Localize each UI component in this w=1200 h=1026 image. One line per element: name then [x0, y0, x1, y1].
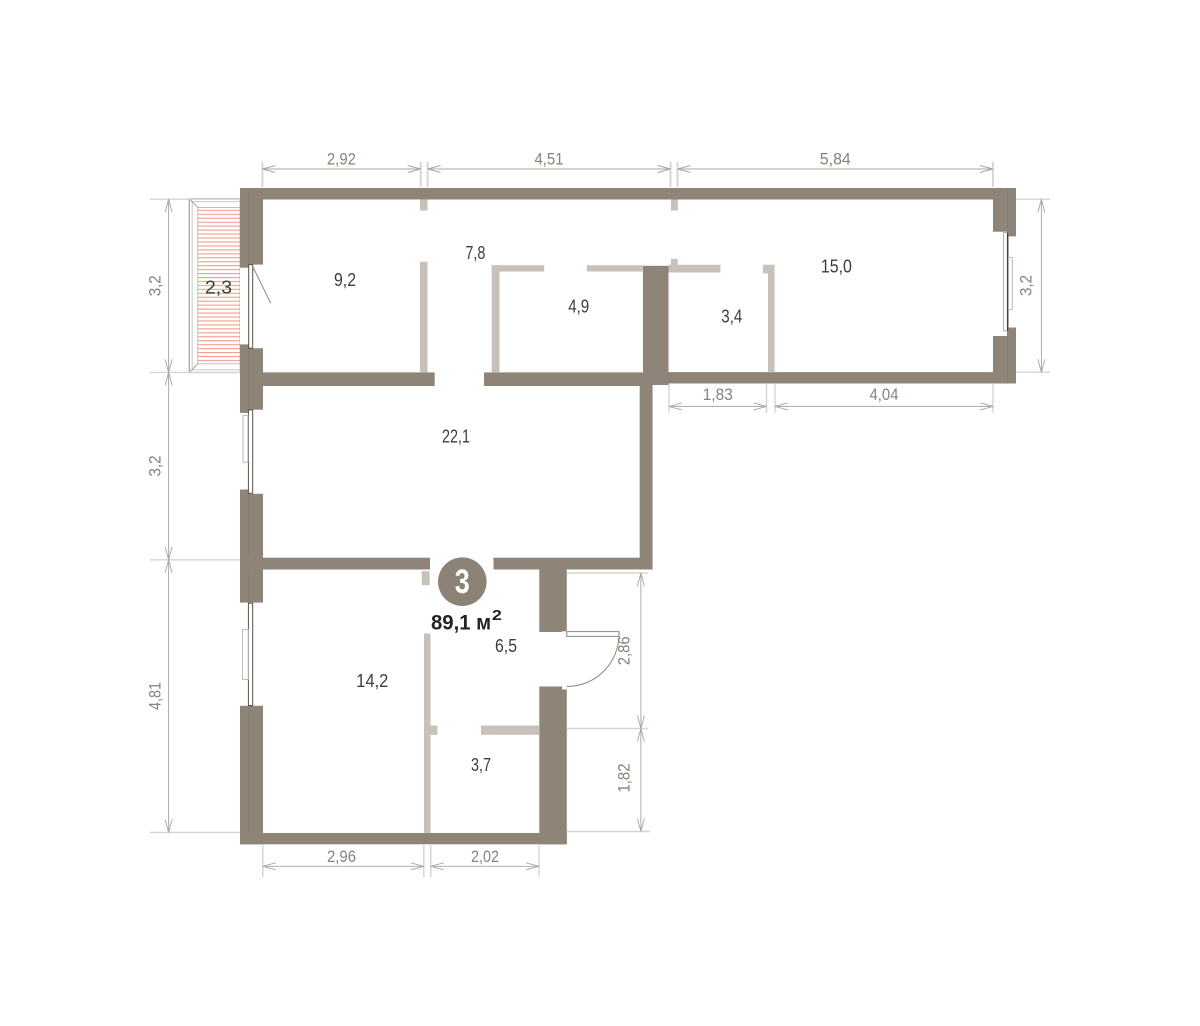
svg-text:1,83: 1,83	[703, 385, 733, 404]
svg-text:2,3: 2,3	[205, 278, 232, 298]
svg-text:3: 3	[455, 563, 470, 601]
svg-text:6,5: 6,5	[495, 636, 517, 656]
svg-text:5,84: 5,84	[820, 150, 851, 169]
svg-text:3,7: 3,7	[471, 755, 491, 775]
svg-text:7,8: 7,8	[465, 243, 485, 263]
svg-text:2,02: 2,02	[471, 847, 499, 866]
svg-text:22,1: 22,1	[442, 427, 470, 447]
svg-text:2: 2	[492, 607, 502, 624]
svg-text:4,51: 4,51	[535, 150, 564, 169]
svg-text:15,0: 15,0	[821, 257, 852, 277]
svg-text:2,86: 2,86	[615, 636, 634, 665]
svg-text:м: м	[476, 610, 491, 634]
svg-text:3,2: 3,2	[146, 456, 165, 477]
svg-text:9,2: 9,2	[334, 270, 356, 290]
svg-text:1,82: 1,82	[615, 764, 634, 793]
svg-text:3,4: 3,4	[721, 307, 742, 327]
svg-text:4,04: 4,04	[870, 385, 899, 404]
svg-text:2,92: 2,92	[327, 150, 356, 169]
svg-text:4,81: 4,81	[146, 682, 165, 710]
svg-text:2,96: 2,96	[327, 847, 356, 866]
svg-text:3,2: 3,2	[146, 275, 165, 296]
svg-text:14,2: 14,2	[356, 671, 388, 691]
svg-text:4,9: 4,9	[568, 297, 589, 317]
svg-text:89,1: 89,1	[431, 610, 471, 634]
svg-text:3,2: 3,2	[1017, 275, 1036, 296]
